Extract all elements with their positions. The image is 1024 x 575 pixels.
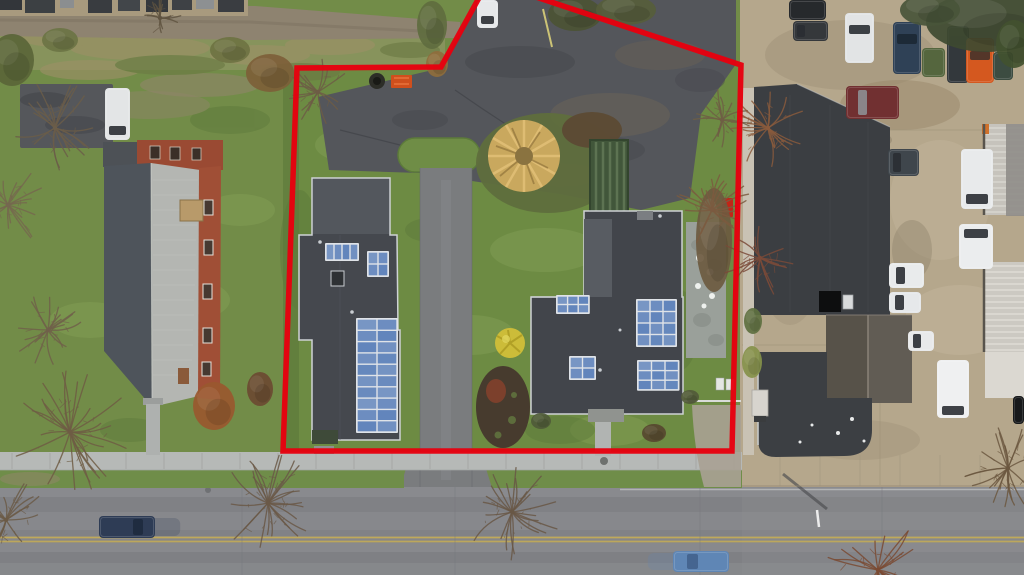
solar-array-right-house-se bbox=[637, 360, 680, 391]
outbuilding-roof bbox=[88, 0, 112, 13]
dumpster-green bbox=[922, 48, 945, 77]
bush-right-house-2 bbox=[642, 424, 666, 442]
solar-array-left-house-top-row bbox=[325, 243, 359, 261]
roof-vent bbox=[619, 329, 622, 332]
solar-array-left-house-top-pair bbox=[367, 251, 389, 277]
roof-vent bbox=[598, 368, 602, 372]
vehicle-navy-car bbox=[893, 22, 921, 74]
bush-brown-left bbox=[247, 372, 273, 406]
vehicle-dark-truck-b bbox=[793, 21, 828, 41]
outbuilding-roof bbox=[172, 0, 192, 10]
vehicle-maroon-pickup bbox=[846, 86, 899, 119]
front-step bbox=[143, 398, 163, 405]
balcony-dormer bbox=[180, 200, 203, 221]
roof-vent bbox=[318, 240, 322, 244]
solar-array-right-house-ne bbox=[636, 299, 677, 347]
picnic-table bbox=[391, 75, 412, 88]
aerial-scene bbox=[0, 0, 1024, 575]
tree-orange-topleft bbox=[246, 54, 294, 92]
solar-array-right-house-nw bbox=[556, 295, 590, 314]
bush-topleft bbox=[210, 37, 250, 63]
vehicle-white-van-2 bbox=[959, 224, 993, 269]
fire-pit bbox=[369, 73, 385, 89]
vehicle-white-van-left bbox=[105, 88, 130, 140]
bush-nw-corner-2 bbox=[42, 28, 78, 52]
vehicle-black-edge bbox=[1013, 396, 1024, 424]
vehicle-blue-car-westbound bbox=[99, 516, 180, 538]
slats-lower bbox=[984, 266, 1024, 350]
bush-right-house-3 bbox=[681, 390, 699, 404]
rooftop-unit bbox=[843, 295, 853, 309]
ac-unit-1 bbox=[716, 378, 724, 390]
solar-array-left-house-main bbox=[356, 318, 398, 433]
vehicle-gray-suv bbox=[888, 149, 919, 176]
vehicle-white-box-truck bbox=[937, 360, 969, 418]
outbuildings bbox=[0, 0, 248, 16]
vehicle-white-car-2 bbox=[889, 292, 921, 313]
facade-window bbox=[170, 147, 180, 160]
sidewalk-manhole bbox=[600, 457, 608, 465]
outbuilding-roof bbox=[118, 0, 140, 11]
roof-vent bbox=[658, 214, 662, 218]
outbuilding-roof bbox=[25, 0, 55, 13]
bush-top-entrance bbox=[417, 1, 447, 49]
roof-hatch bbox=[819, 291, 841, 312]
outbuilding-roof bbox=[196, 0, 214, 9]
slatted-roof-dark-half bbox=[1006, 124, 1024, 216]
entrance-canopy bbox=[752, 390, 768, 416]
facade-window bbox=[192, 148, 201, 160]
vehicle-white-car-top bbox=[477, 0, 498, 28]
vehicle-white-car-3 bbox=[908, 331, 934, 351]
ridge-vent bbox=[637, 211, 653, 220]
vehicle-blue-car-eastbound bbox=[648, 551, 729, 572]
commercial-building bbox=[743, 84, 912, 457]
vehicle-dark-truck-a bbox=[789, 0, 826, 20]
garden-trellis bbox=[590, 140, 628, 216]
grass-island bbox=[398, 138, 480, 172]
yellow-bush bbox=[495, 328, 525, 358]
outbuilding-roof bbox=[60, 0, 74, 8]
vehicle-white-pickup bbox=[845, 13, 874, 63]
bush-right-house-1 bbox=[531, 413, 551, 429]
aerial-photo bbox=[0, 0, 1024, 575]
rear-porch bbox=[312, 430, 338, 444]
sidewalk bbox=[0, 452, 742, 470]
bush-commercial-west bbox=[744, 308, 762, 334]
bush-commercial-front bbox=[742, 346, 762, 378]
solar-array-right-house-sw bbox=[569, 356, 596, 380]
front-white-section bbox=[985, 352, 1024, 398]
outbuilding-roof bbox=[0, 0, 22, 10]
pampas-grass bbox=[488, 120, 560, 192]
garage-roof bbox=[313, 179, 389, 234]
driveway-wear-strip bbox=[441, 180, 451, 480]
front-porch-roof bbox=[588, 409, 624, 422]
front-walkway bbox=[146, 404, 160, 455]
mulch-bed bbox=[476, 366, 530, 448]
tree-orange-left-lawn bbox=[193, 382, 235, 430]
chimney bbox=[178, 368, 189, 384]
outbuilding-roof bbox=[218, 0, 244, 12]
north-wing-roof bbox=[103, 142, 140, 167]
grass-verge-west bbox=[0, 470, 404, 488]
vehicle-white-van-1 bbox=[961, 149, 993, 209]
skylight bbox=[331, 271, 344, 286]
northwest-roof-strip bbox=[584, 219, 612, 297]
entrance-doorway bbox=[754, 416, 766, 422]
facade-window bbox=[150, 146, 160, 159]
roof-vent bbox=[350, 310, 354, 314]
gable-section bbox=[826, 315, 912, 403]
vehicle-white-car-1 bbox=[889, 263, 924, 288]
